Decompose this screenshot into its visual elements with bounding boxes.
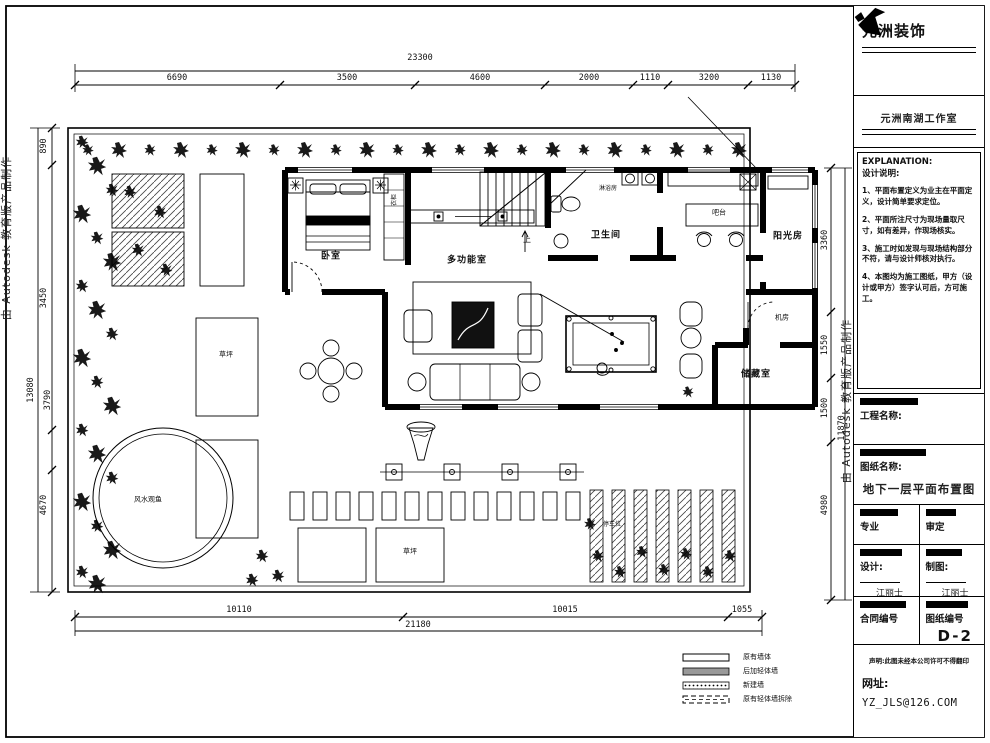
shower-partition: [548, 170, 586, 206]
dim-bottom-seg-1: 10015: [552, 606, 578, 615]
sheet-number: D-2: [938, 627, 985, 645]
planter-bed: [112, 232, 184, 286]
bedroom-furniture: [288, 174, 404, 292]
headboard: [306, 180, 370, 192]
explanation-note: 3、施工时如发现与现场结构部分不符，请与设计师核对执行。: [862, 244, 976, 266]
redacted-bar: [860, 549, 902, 556]
round-table: [681, 328, 701, 348]
dim-top-total: 23300: [407, 54, 433, 63]
legend-item-1: 后加轻体墙: [743, 668, 778, 675]
autodesk-watermark-right: 由 Autodesk 教育版产品制作: [838, 231, 854, 571]
pergola-posts: [290, 492, 580, 520]
planter-bed: [112, 174, 184, 228]
dim-bottom-total: 21180: [405, 621, 431, 630]
room-label-multi: 多功能室: [447, 257, 487, 266]
room-label-bath: 卫生间: [591, 232, 621, 241]
sheet-label: 图纸编号: [926, 611, 985, 625]
room-label-sunroom: 阳光房: [773, 233, 803, 242]
dim-top-seg-2: 4600: [470, 74, 490, 83]
major-cell: 专业: [854, 505, 920, 544]
review-row: 专业 审定: [854, 505, 984, 545]
lounge-chair: [680, 354, 702, 378]
redacted-bar: [926, 601, 968, 608]
studio-name: 元洲南湖工作室: [854, 96, 984, 125]
closet: [384, 174, 404, 260]
dim-bottom-seg-2: 1055: [732, 606, 752, 615]
recliner: [518, 330, 542, 362]
dim-left-seg-2: 3790: [44, 390, 53, 410]
room-label-bar: 吧台: [712, 210, 726, 217]
divider: [862, 129, 976, 135]
legend-symbols: [683, 654, 729, 703]
stairs: [480, 172, 545, 252]
sink: [554, 234, 568, 248]
redacted-bar: [860, 509, 898, 516]
email: YZ_JLS@126.COM: [862, 697, 984, 709]
contract-cell: 合同编号: [854, 597, 920, 644]
lounge-chair: [680, 302, 702, 326]
pool-table: [540, 294, 656, 375]
sunroom-bench: [768, 176, 808, 189]
brand-section: 元洲装饰: [854, 6, 984, 96]
garden-statue: [407, 422, 435, 460]
dim-top-seg-5: 3200: [699, 74, 719, 83]
legend-item-0: 原有墙体: [743, 654, 771, 661]
legend-item-3: 原有轻体墙拆除: [743, 696, 792, 703]
planter-bed: [200, 174, 244, 286]
door-swing: [292, 262, 322, 292]
project-name-label: 工程名称:: [860, 408, 984, 422]
signature-row: 设计: 江丽士 制图: 江丽士: [854, 545, 984, 597]
dim-right-seg-2: 1500: [821, 398, 830, 418]
redacted-bar: [860, 601, 906, 608]
approve-cell: 审定: [920, 505, 985, 544]
side-table: [522, 373, 540, 391]
redacted-bar: [926, 509, 956, 516]
design-cell: 设计: 江丽士: [854, 545, 920, 596]
dim-left-total: 13080: [27, 377, 36, 403]
dim-right-seg-1: 1550: [821, 335, 830, 355]
lawn-area: [196, 440, 258, 538]
redacted-bar: [860, 449, 926, 456]
explanation-note: 4、本图均为施工图纸，甲方（设计或甲方）签字认可后，方可施工。: [862, 272, 976, 305]
major-label: 专业: [860, 519, 919, 533]
design-signature: 江丽士: [876, 586, 919, 597]
dim-left-seg-1: 3450: [40, 288, 49, 308]
dim-top-seg-6: 1130: [761, 74, 781, 83]
side-table: [408, 373, 426, 391]
studio-section: 元洲南湖工作室: [854, 96, 984, 148]
contact-section: 声明:此图未经本公司许可不得翻印 网址: YZ_JLS@126.COM: [854, 645, 984, 737]
design-label: 设计:: [860, 562, 883, 573]
dim-top-seg-3: 2000: [579, 74, 599, 83]
dim-top-seg-4: 1110: [640, 74, 660, 83]
dim-top-seg-0: 6690: [167, 74, 187, 83]
room-label-storage: 储藏室: [741, 371, 771, 380]
dim-bottom-seg-0: 10110: [226, 606, 252, 615]
project-name-section: 工程名称:: [854, 394, 984, 445]
title-block: 元洲装饰 元洲南湖工作室 EXPLANATION: 设计说明: 1、平面布置定义…: [853, 6, 984, 737]
building-walls: [285, 170, 815, 407]
drawing-sheet: 23300 6690 3500 4600 2000 1110 3200 1130…: [0, 0, 990, 743]
dim-left-seg-3: 4670: [40, 495, 49, 515]
autodesk-watermark-left: 由 Autodesk 教育版产品制作: [0, 138, 14, 338]
approve-label: 审定: [926, 519, 985, 533]
dim-top-seg-1: 3500: [337, 74, 357, 83]
divider: [862, 47, 976, 53]
outdoor-dining-set: [300, 340, 362, 402]
recliner: [518, 294, 542, 326]
room-label-bedroom: 卧室: [321, 253, 341, 262]
disclaimer: 声明:此图未经本公司许可不得翻印: [854, 655, 984, 665]
pond-label: 风水观鱼: [134, 497, 162, 504]
drawing-title-label: 图纸名称:: [860, 459, 984, 473]
explanation-title-zh: 设计说明:: [862, 167, 976, 179]
number-row: 合同编号 图纸编号 D-2: [854, 597, 984, 645]
lamp: [290, 180, 301, 191]
room-label-closet: 衣柜: [392, 194, 398, 206]
dim-right-seg-0: 3360: [821, 230, 830, 250]
lawn-label-1: 草坪: [219, 352, 233, 359]
explanation-note: 2、平面所注尺寸为现场量取尺寸，如有差异，作现场核实。: [862, 215, 976, 237]
redacted-bar: [860, 398, 918, 405]
draw-cell: 制图: 江丽士: [920, 545, 985, 596]
signature-line: [926, 573, 966, 583]
room-label-shower: 淋浴房: [599, 186, 617, 192]
garden-pavers: [380, 464, 584, 480]
redacted-bar: [926, 549, 962, 556]
drawing-title-section: 图纸名称: 地下一层平面布置图: [854, 445, 984, 505]
room-label-machine: 机房: [775, 315, 789, 322]
machine-room-door: [748, 302, 774, 328]
toilet-bowl: [562, 197, 580, 211]
stairs-up-label: 上: [523, 236, 531, 244]
lawn-area: [196, 318, 258, 416]
armchair: [404, 310, 432, 342]
sofa: [430, 364, 520, 400]
draw-signature: 江丽士: [942, 586, 985, 597]
parking-label: 停车位: [603, 522, 621, 528]
explanation-section: EXPLANATION: 设计说明: 1、平面布置定义为业主在平面定义，设计简单…: [854, 148, 984, 394]
dim-right-seg-3: 4980: [821, 495, 830, 515]
drawing-title: 地下一层平面布置图: [854, 481, 984, 497]
bar-stool: [730, 234, 743, 247]
bar-stool: [698, 234, 711, 247]
sheet-cell: 图纸编号 D-2: [920, 597, 985, 644]
signature-line: [860, 573, 900, 583]
legend-item-2: 新建墙: [743, 682, 764, 689]
lawn-label-2: 草坪: [403, 549, 417, 556]
website-label: 网址:: [862, 675, 984, 691]
explanation-note: 1、平面布置定义为业主在平面定义，设计简单要求定位。: [862, 186, 976, 208]
draw-label: 制图:: [926, 562, 949, 573]
explanation-title-en: EXPLANATION:: [862, 157, 976, 167]
contract-label: 合同编号: [860, 611, 919, 625]
lawn-area: [298, 528, 366, 582]
dim-left-seg-0: 890: [40, 138, 49, 153]
explanation-box: EXPLANATION: 设计说明: 1、平面布置定义为业主在平面定义，设计简单…: [857, 152, 981, 389]
brand-logo-icon: [854, 6, 888, 38]
